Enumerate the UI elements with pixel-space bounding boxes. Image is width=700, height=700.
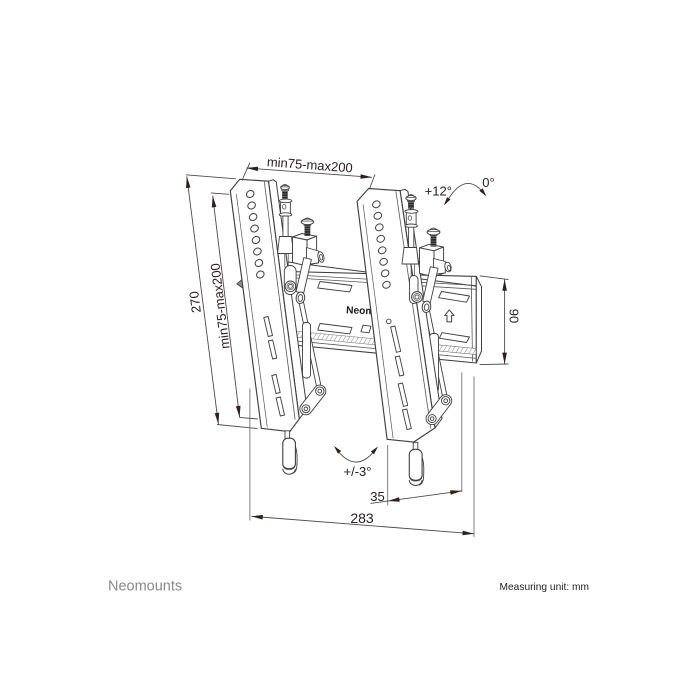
svg-text:90: 90	[507, 309, 522, 323]
svg-text:Measuring unit: mm: Measuring unit: mm	[500, 582, 589, 593]
svg-text:Neomounts: Neomounts	[108, 579, 182, 595]
svg-text:283: 283	[350, 510, 374, 526]
svg-text:35: 35	[370, 489, 384, 504]
svg-text:+12°: +12°	[425, 184, 452, 199]
svg-text:0°: 0°	[482, 175, 494, 190]
svg-text:+/-3°: +/-3°	[344, 464, 372, 479]
svg-text:270: 270	[186, 290, 204, 313]
